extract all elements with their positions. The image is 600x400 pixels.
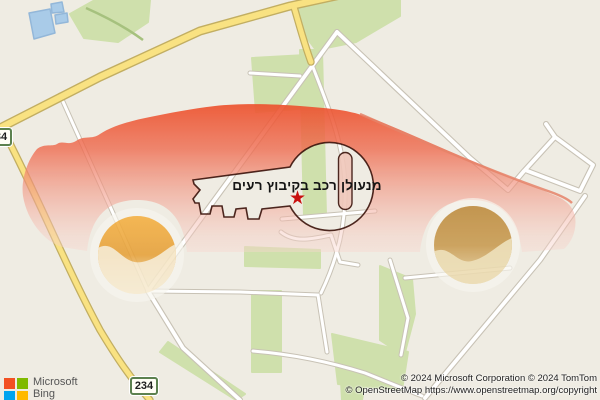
road-shield-234-partial: 234: [0, 128, 12, 146]
microsoft-logo-icon: [4, 378, 27, 400]
bing-wordmark: Bing: [33, 388, 55, 400]
ms-logo-blue-square: [4, 391, 15, 400]
attribution-line-2[interactable]: © OpenStreetMap https://www.openstreetma…: [346, 385, 598, 397]
ms-logo-green-square: [17, 378, 28, 389]
bing-map-viewport[interactable]: מנעולן רכב בקיבוץ רעים ★ 234 234 Microso…: [0, 0, 600, 400]
ms-logo-red-square: [4, 378, 15, 389]
microsoft-wordmark: Microsoft: [33, 376, 78, 388]
ms-logo-yellow-square: [17, 391, 28, 400]
star-marker-icon[interactable]: ★: [289, 189, 306, 208]
road-shield-234: 234: [130, 377, 158, 395]
attribution-line-1: © 2024 Microsoft Corporation © 2024 TomT…: [346, 373, 598, 385]
map-attribution: © 2024 Microsoft Corporation © 2024 TomT…: [346, 373, 598, 397]
business-label: מנעולן רכב בקיבוץ רעים: [228, 178, 386, 193]
